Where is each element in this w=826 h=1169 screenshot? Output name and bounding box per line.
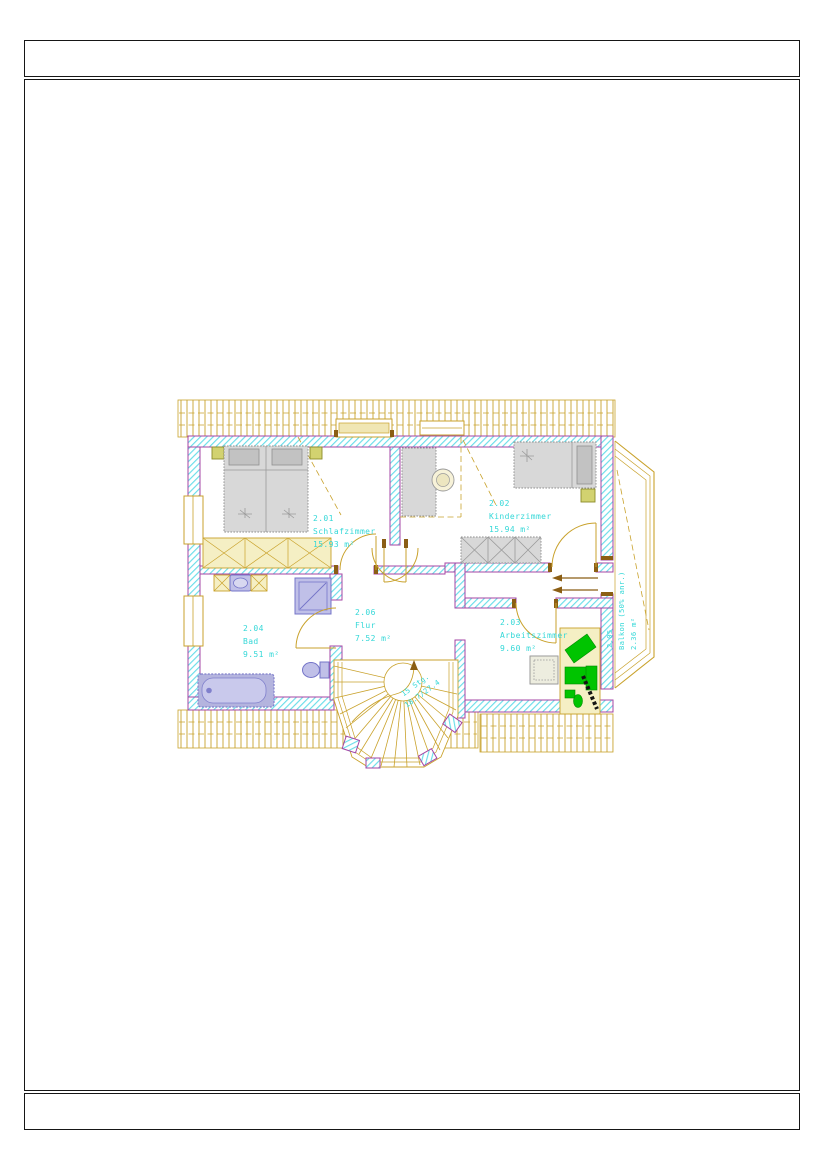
wardrobe-kinderzimmer [461, 537, 541, 563]
double-bed [212, 446, 322, 532]
dormer-window-right [420, 421, 464, 435]
room-area: 2.36 m² [629, 618, 638, 650]
single-bed [514, 442, 596, 502]
room-area: 15.93 m² [313, 540, 355, 549]
cabinet [251, 575, 267, 591]
wardrobe-schlafzimmer [203, 538, 331, 568]
room-name: Kinderzimmer [489, 512, 552, 521]
drawing-sheet: 15 Stg. 18.7/27.4 2.01 Schlafzimmer 15.9… [0, 0, 826, 1169]
nightstand [581, 489, 595, 502]
window-left-lower [184, 596, 203, 646]
door-kinderzimmer [548, 523, 598, 572]
room-number: 2.01 [313, 514, 334, 523]
desk-dormer [402, 448, 454, 516]
room-name: Arbeitszimmer [500, 631, 568, 640]
room-number: 2.02 [489, 499, 510, 508]
room-number: 2.03 [500, 618, 521, 627]
room-label-arbeitszimmer: 2.03 Arbeitszimmer 9.60 m² [500, 618, 568, 653]
roof-overhang-bottom-right [480, 714, 613, 752]
room-number: 2.04 [243, 624, 264, 633]
room-name: Schlafzimmer [313, 527, 376, 536]
staircase: 15 Stg. 18.7/27.4 [334, 660, 462, 768]
washbasin [230, 575, 251, 591]
room-area: 15.94 m² [489, 525, 531, 534]
room-label-schlafzimmer: 2.01 Schlafzimmer 15.93 m² [313, 514, 376, 549]
bathtub [198, 674, 274, 707]
dormer-window-left [334, 419, 394, 437]
bathroom-fixtures [198, 575, 331, 707]
cabinet [214, 575, 230, 591]
room-label-kinderzimmer: 2.02 Kinderzimmer 15.94 m² [489, 499, 552, 534]
room-area: 9.51 m² [243, 650, 280, 659]
shower [295, 578, 331, 614]
room-number: 2.06 [355, 608, 376, 617]
title-bar-top [24, 40, 800, 77]
floor-plan: 15 Stg. 18.7/27.4 2.01 Schlafzimmer 15.9… [160, 385, 680, 795]
door-swing-arrows [552, 575, 598, 594]
nightstand [212, 447, 224, 459]
roof-overhang-top [178, 400, 615, 437]
window-left-upper [184, 496, 203, 544]
room-area: 9.60 m² [500, 644, 537, 653]
title-bar-bottom [24, 1093, 800, 1130]
toilet [303, 662, 330, 678]
room-label-bad: 2.04 Bad 9.51 m² [243, 624, 280, 659]
room-area: 7.52 m² [355, 634, 392, 643]
balcony-door [601, 556, 613, 596]
room-label-flur: 2.06 Flur 7.52 m² [355, 608, 392, 643]
room-name: Balkon (50% anr.) [617, 571, 626, 650]
nightstand [310, 447, 322, 459]
room-number: 2.05 [605, 629, 614, 648]
room-name: Bad [243, 637, 259, 646]
room-name: Flur [355, 621, 376, 630]
side-table [530, 656, 558, 684]
